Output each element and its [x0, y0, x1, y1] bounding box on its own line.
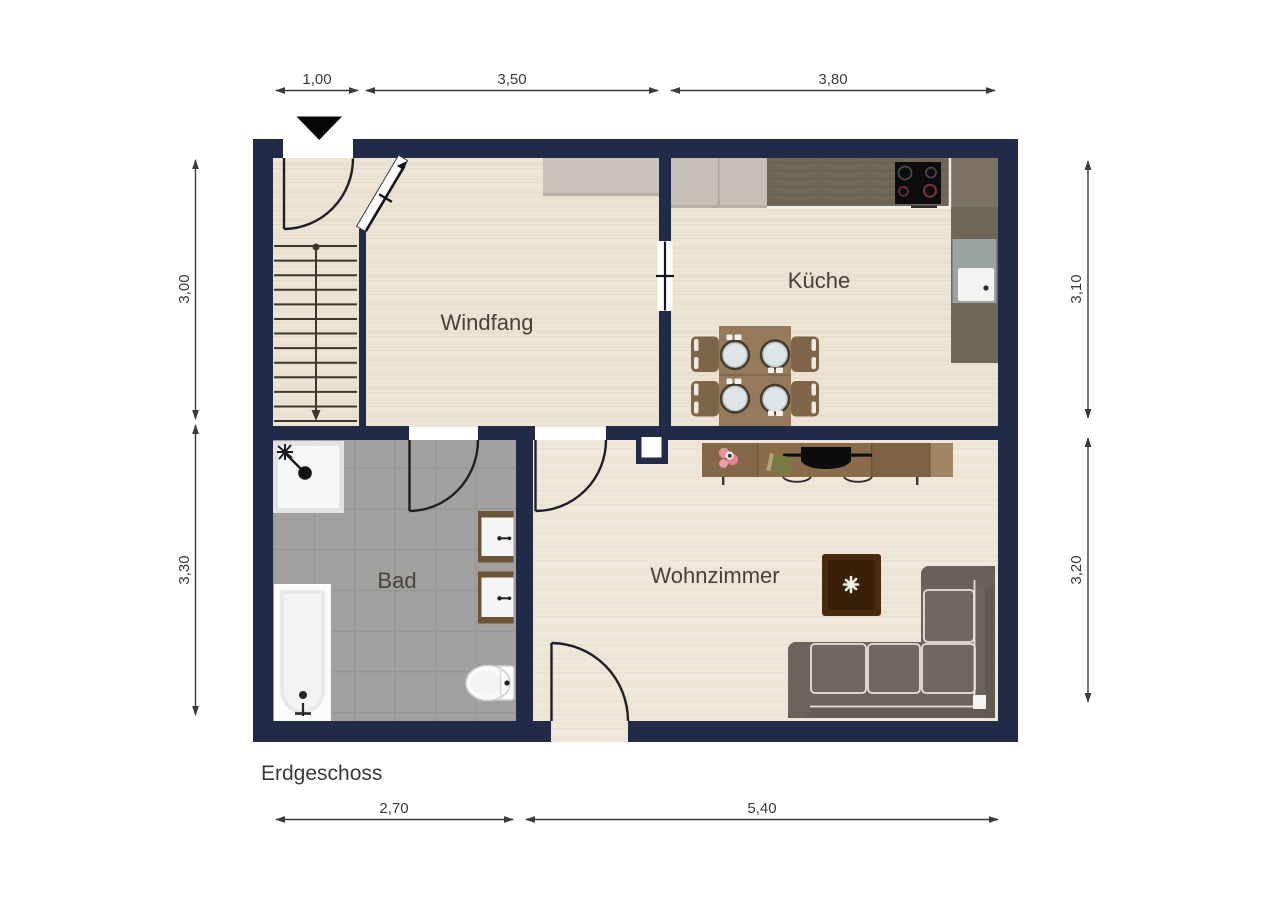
svg-text:1,00: 1,00 [302, 71, 331, 88]
svg-text:2,70: 2,70 [379, 800, 408, 817]
svg-text:Wohnzimmer: Wohnzimmer [650, 563, 779, 588]
svg-text:3,10: 3,10 [1068, 274, 1085, 303]
svg-text:Bad: Bad [377, 568, 416, 593]
svg-text:Erdgeschoss: Erdgeschoss [261, 762, 382, 785]
svg-text:Küche: Küche [788, 268, 850, 293]
svg-text:3,20: 3,20 [1068, 555, 1085, 584]
svg-text:3,00: 3,00 [176, 274, 193, 303]
svg-text:Windfang: Windfang [441, 310, 534, 335]
svg-text:3,80: 3,80 [818, 71, 847, 88]
svg-text:5,40: 5,40 [747, 800, 776, 817]
svg-text:3,50: 3,50 [497, 71, 526, 88]
svg-text:3,30: 3,30 [176, 555, 193, 584]
